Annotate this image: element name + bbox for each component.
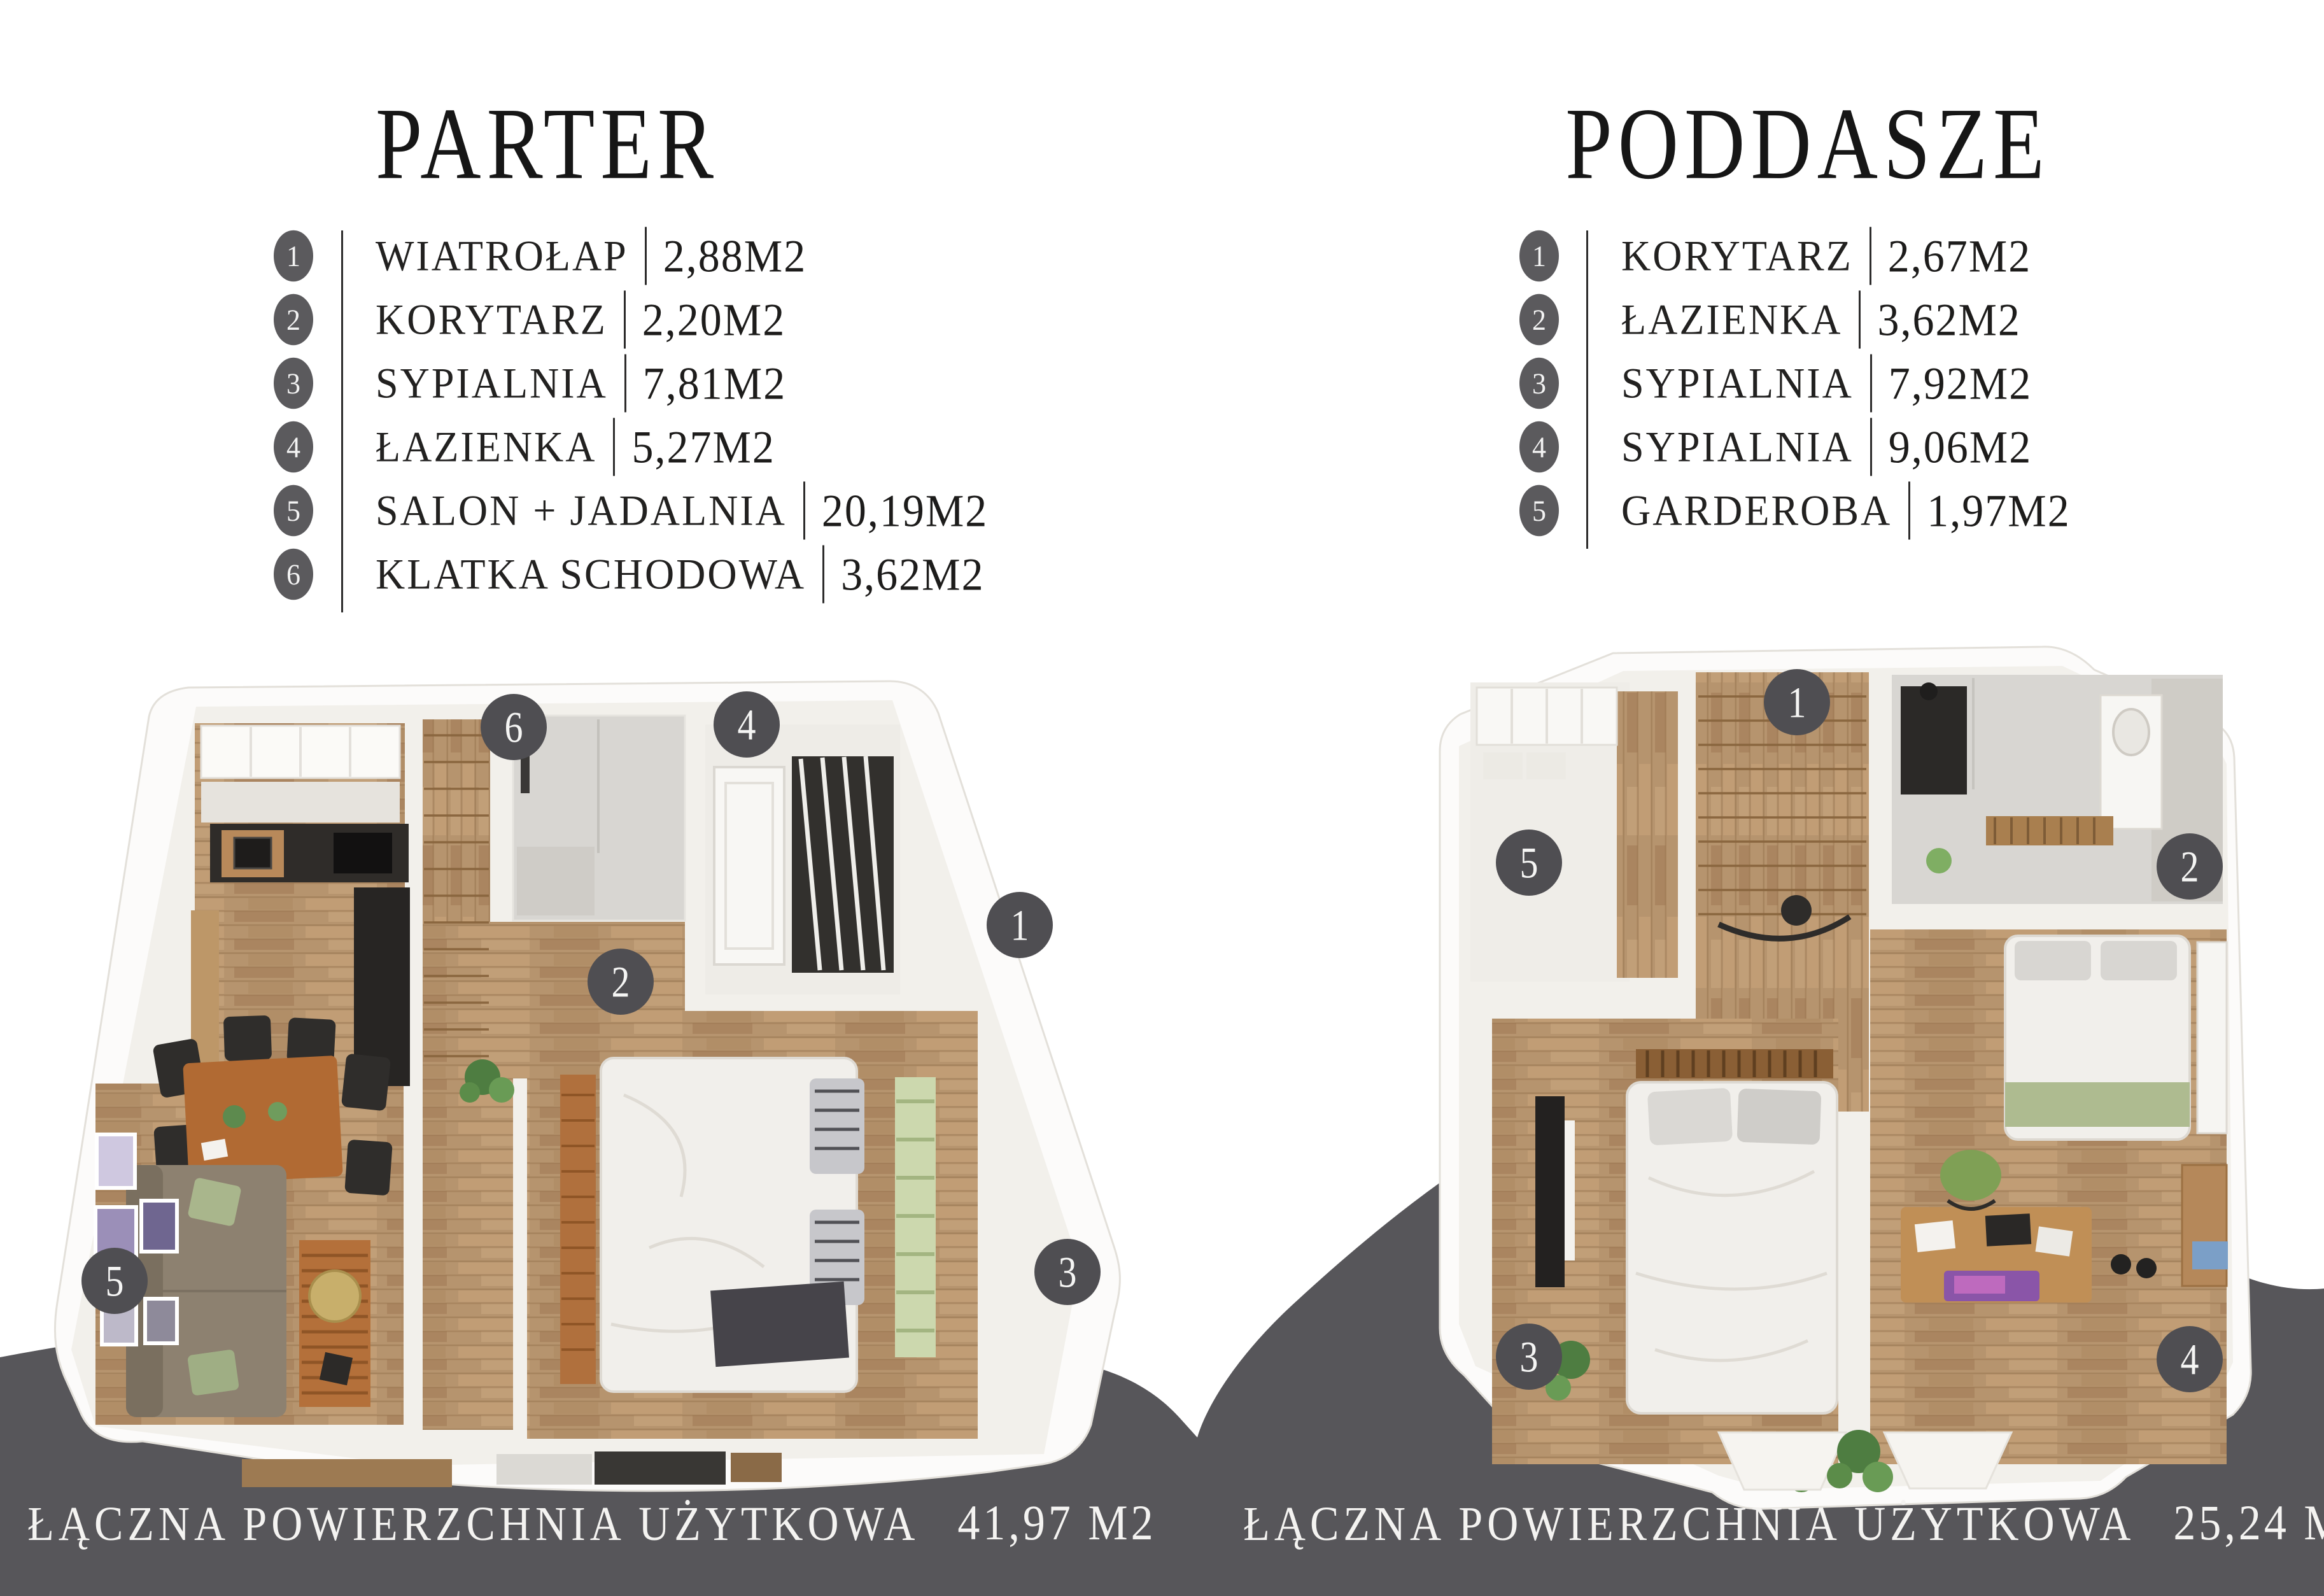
plan-marker-parter-2: 2: [588, 949, 654, 1015]
plan-marker-parter-5: 5: [81, 1248, 148, 1314]
legend-row: 1 KORYTARZ 2,67M2: [1523, 222, 2324, 290]
name-area-separator: [624, 290, 626, 348]
room-number-badge: 1: [274, 230, 313, 282]
plan-marker-poddasze-3: 3: [1496, 1324, 1562, 1390]
room-area: 1,97M2: [1927, 484, 2070, 537]
room-name: KLATKA SCHODOWA: [376, 549, 806, 599]
room-area: 9,06M2: [1889, 420, 2032, 474]
room-area: 5,27M2: [631, 420, 775, 474]
room-area: 20,19M2: [822, 484, 988, 537]
room-area: 7,92M2: [1889, 357, 2032, 410]
plan-marker-poddasze-1: 1: [1764, 669, 1830, 735]
legend-row: 5 GARDEROBA 1,97M2: [1523, 477, 2324, 544]
room-number-badge: 1: [1519, 230, 1559, 282]
room-number-badge: 5: [1519, 485, 1559, 537]
name-area-separator: [1870, 418, 1872, 476]
legend-row: 5 SALON + JADALNIA 20,19M2: [274, 477, 1203, 544]
name-area-separator: [613, 418, 615, 476]
name-area-separator: [645, 227, 647, 285]
section-title-poddasze: PODDASZE: [1458, 70, 2158, 218]
room-name: KORYTARZ: [376, 295, 607, 344]
room-number-badge: 5: [274, 485, 313, 537]
total-area-poddasze: ŁĄCZNA POWIERZCHNIA UŻYTKOWA 25,24 M2: [1292, 1481, 2323, 1566]
poddasze-floorplan: [1440, 647, 2251, 1509]
room-area: 2,67M2: [1888, 229, 2031, 283]
name-area-separator: [803, 481, 805, 539]
plan-marker-parter-3: 3: [1034, 1239, 1101, 1305]
total-area-label: ŁĄCZNA POWIERZCHNIA UŻYTKOWA: [27, 1495, 919, 1551]
room-name: GARDEROBA: [1621, 486, 1892, 535]
legend-parter: 1 WIATROŁAP 2,88M2 2 KORYTARZ 2,20M2 3 S…: [274, 224, 1203, 606]
legend-row: 4 SYPIALNIA 9,06M2: [1523, 413, 2324, 481]
room-number-badge: 6: [274, 549, 313, 600]
room-number-badge: 2: [1519, 294, 1559, 346]
legend-row: 3 SYPIALNIA 7,81M2: [274, 350, 1203, 417]
plan-marker-parter-1: 1: [987, 892, 1053, 958]
room-area: 3,62M2: [1877, 293, 2020, 346]
legend-row: 2 KORYTARZ 2,20M2: [274, 286, 1203, 353]
plan-marker-poddasze-5: 5: [1496, 830, 1562, 896]
room-area: 2,20M2: [642, 293, 785, 346]
plan-marker-parter-4: 4: [714, 691, 780, 758]
name-area-separator: [1908, 481, 1910, 539]
plan-marker-poddasze-2: 2: [2157, 833, 2223, 900]
total-area-parter: ŁĄCZNA POWIERZCHNIA UŻYTKOWA 41,97 M2: [76, 1481, 1108, 1566]
room-name: WIATROŁAP: [376, 231, 628, 281]
name-area-separator: [624, 354, 626, 412]
room-area: 3,62M2: [841, 547, 984, 601]
room-name: ŁAZIENKA: [376, 422, 596, 472]
name-area-separator: [1859, 290, 1861, 348]
section-title-parter: PARTER: [197, 70, 898, 218]
name-area-separator: [1870, 227, 1871, 285]
legend-row: 4 ŁAZIENKA 5,27M2: [274, 413, 1203, 481]
total-area-value: 41,97 M2: [957, 1495, 1156, 1552]
room-area: 2,88M2: [663, 229, 806, 283]
room-name: KORYTARZ: [1621, 231, 1853, 281]
legend-poddasze: 1 KORYTARZ 2,67M2 2 ŁAZIENKA 3,62M2 3 SY…: [1523, 224, 2324, 542]
room-name: ŁAZIENKA: [1621, 295, 1842, 344]
room-number-badge: 3: [1519, 358, 1559, 409]
plan-marker-parter-6: 6: [481, 694, 547, 760]
legend-row: 3 SYPIALNIA 7,92M2: [1523, 350, 2324, 417]
legend-row: 2 ŁAZIENKA 3,62M2: [1523, 286, 2324, 353]
name-area-separator: [822, 545, 824, 603]
room-name: SYPIALNIA: [1621, 358, 1854, 408]
plan-marker-poddasze-4: 4: [2157, 1326, 2223, 1392]
room-name: SALON + JADALNIA: [376, 486, 787, 535]
room-number-badge: 2: [274, 294, 313, 346]
total-area-value: 25,24 M2: [2173, 1495, 2324, 1552]
room-name: SYPIALNIA: [1621, 422, 1854, 472]
room-number-badge: 4: [1519, 421, 1559, 473]
legend-row: 6 KLATKA SCHODOWA 3,62M2: [274, 540, 1203, 608]
total-area-label: ŁĄCZNA POWIERZCHNIA UŻYTKOWA: [1243, 1495, 2135, 1551]
room-number-badge: 3: [274, 358, 313, 409]
room-area: 7,81M2: [643, 357, 786, 410]
legend-row: 1 WIATROŁAP 2,88M2: [274, 222, 1203, 290]
parter-floorplan: [55, 681, 1120, 1491]
name-area-separator: [1870, 354, 1872, 412]
room-number-badge: 4: [274, 421, 313, 473]
room-name: SYPIALNIA: [376, 358, 608, 408]
